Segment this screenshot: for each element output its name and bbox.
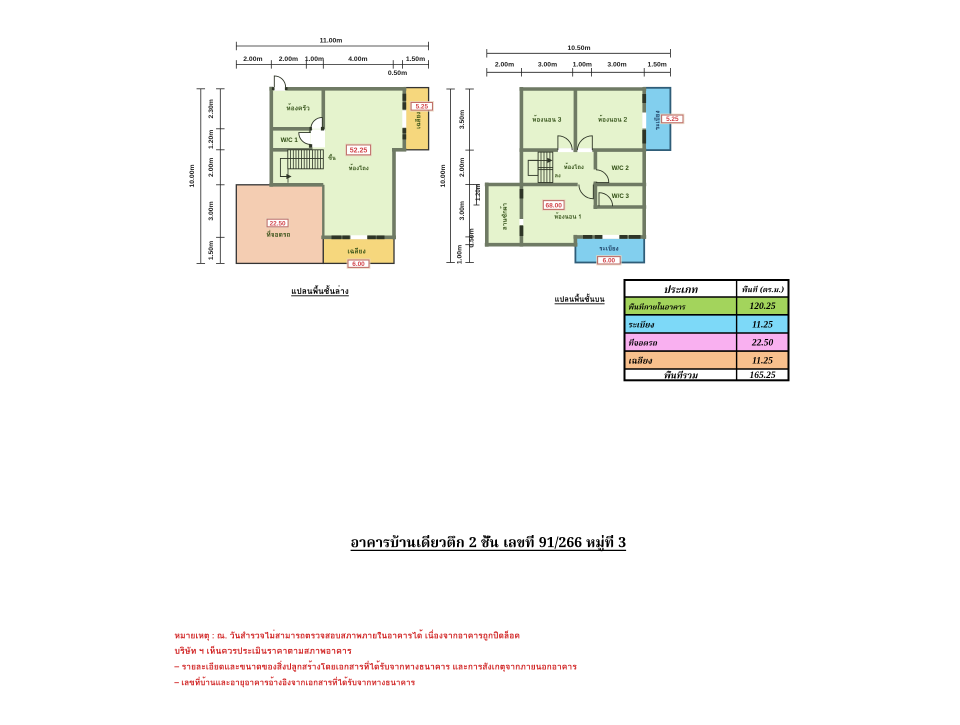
svg-text:120.25: 120.25 <box>749 302 775 312</box>
svg-text:3.00m: 3.00m <box>208 201 215 220</box>
svg-text:1.20m: 1.20m <box>476 184 482 201</box>
svg-text:165.25: 165.25 <box>749 371 775 381</box>
svg-text:3.00m: 3.00m <box>459 201 466 220</box>
svg-text:11.25: 11.25 <box>752 357 773 367</box>
svg-text:3.50m: 3.50m <box>459 110 466 129</box>
svg-text:W/C 2: W/C 2 <box>612 165 630 172</box>
svg-text:1.50m: 1.50m <box>406 56 425 63</box>
svg-text:1.20m: 1.20m <box>208 130 215 149</box>
svg-text:1.50m: 1.50m <box>208 241 215 260</box>
svg-text:3.00m: 3.00m <box>607 61 626 68</box>
svg-text:W/C 1: W/C 1 <box>281 137 299 144</box>
svg-text:10.50m: 10.50m <box>567 45 590 52</box>
svg-text:2.00m: 2.00m <box>243 56 262 63</box>
svg-text:11.00m: 11.00m <box>320 38 343 45</box>
svg-text:22.50: 22.50 <box>270 220 286 227</box>
svg-text:11.25: 11.25 <box>752 320 773 330</box>
svg-text:2.00m: 2.00m <box>208 158 215 177</box>
svg-text:52.25: 52.25 <box>350 147 368 154</box>
svg-text:W/C 3: W/C 3 <box>612 193 630 200</box>
svg-text:2.00m: 2.00m <box>279 56 298 63</box>
svg-text:1.50m: 1.50m <box>648 61 667 68</box>
svg-text:4.00m: 4.00m <box>348 56 367 63</box>
svg-text:10.00m: 10.00m <box>189 164 196 187</box>
svg-text:1.00m: 1.00m <box>305 56 324 63</box>
svg-text:5.25: 5.25 <box>416 104 429 111</box>
svg-text:3.00m: 3.00m <box>538 61 557 68</box>
svg-text:0.50m: 0.50m <box>469 228 476 247</box>
svg-text:5.25: 5.25 <box>666 116 679 123</box>
svg-text:2.00m: 2.00m <box>495 61 514 68</box>
svg-text:2.00m: 2.00m <box>459 158 466 177</box>
svg-text:6.00: 6.00 <box>603 258 616 265</box>
svg-text:2.30m: 2.30m <box>208 99 215 118</box>
svg-text:68.00: 68.00 <box>545 202 562 209</box>
svg-text:22.50: 22.50 <box>751 339 774 349</box>
svg-text:6.00: 6.00 <box>352 261 365 268</box>
svg-text:0.50m: 0.50m <box>388 70 407 77</box>
svg-text:10.00m: 10.00m <box>440 164 447 187</box>
svg-text:1.00m: 1.00m <box>457 245 464 264</box>
svg-text:1.00m: 1.00m <box>573 61 592 68</box>
